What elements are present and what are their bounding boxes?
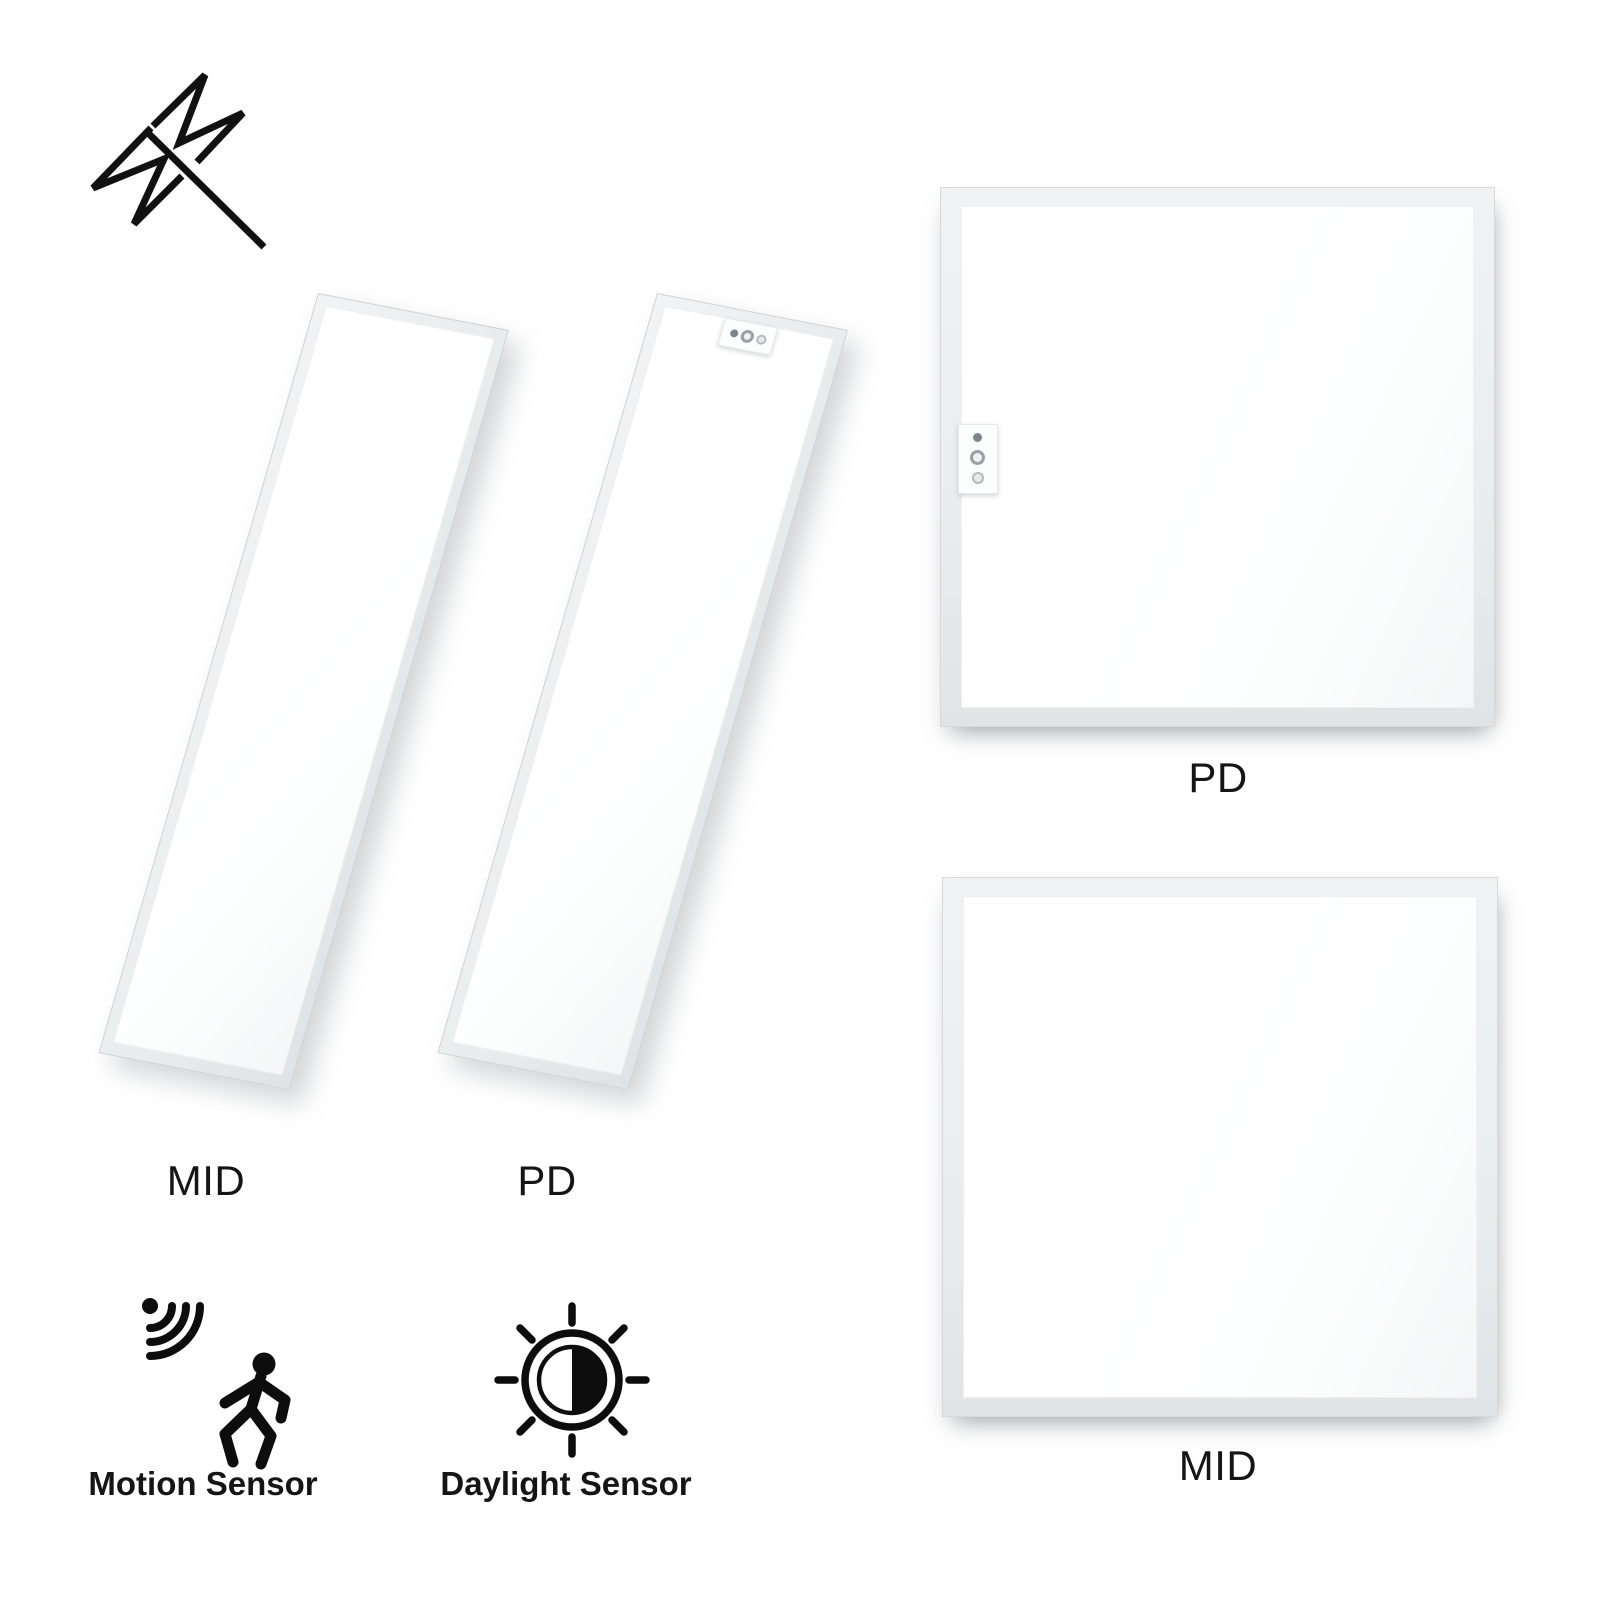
sensor-dot <box>729 329 739 338</box>
person-front-leg <box>225 1409 251 1462</box>
motion-sensor-label: Motion Sensor <box>88 1467 317 1500</box>
pir-daylight-sensor-module <box>958 424 998 494</box>
label-linear-pd: PD <box>517 1160 576 1202</box>
motion-sensor-icon <box>112 1276 312 1471</box>
sensor-dot <box>973 433 982 442</box>
sensor-lens <box>739 329 755 344</box>
panel-light-face <box>963 896 1477 1398</box>
led-panel-product-collage: MID PD PD MID Motion Sensor <box>0 0 1600 1600</box>
radar-dot <box>142 1298 158 1314</box>
walking-person <box>225 1353 285 1465</box>
sensor-dot <box>755 334 768 346</box>
linear-panel-mid <box>98 293 509 1090</box>
square-panel-pd <box>940 187 1495 727</box>
person-back-arm <box>259 1382 285 1418</box>
panel-light-face <box>113 306 495 1076</box>
person-back-leg <box>251 1409 271 1464</box>
photocell-dark-half <box>572 1347 605 1413</box>
daylight-sensor-label: Daylight Sensor <box>440 1467 691 1500</box>
panel-light-face <box>961 206 1474 708</box>
sensor-dot <box>972 472 984 484</box>
square-panel-mid <box>942 877 1498 1417</box>
lightning-lower-zigzag <box>93 128 182 224</box>
panel-light-face <box>452 306 834 1076</box>
label-square-pd: PD <box>1188 757 1247 799</box>
no-flicker-icon <box>82 52 282 262</box>
label-square-mid: MID <box>1179 1445 1258 1487</box>
linear-panel-pd <box>437 293 848 1090</box>
label-linear-mid: MID <box>167 1160 246 1202</box>
sensor-lens <box>970 450 985 465</box>
daylight-sensor-icon <box>492 1300 652 1460</box>
